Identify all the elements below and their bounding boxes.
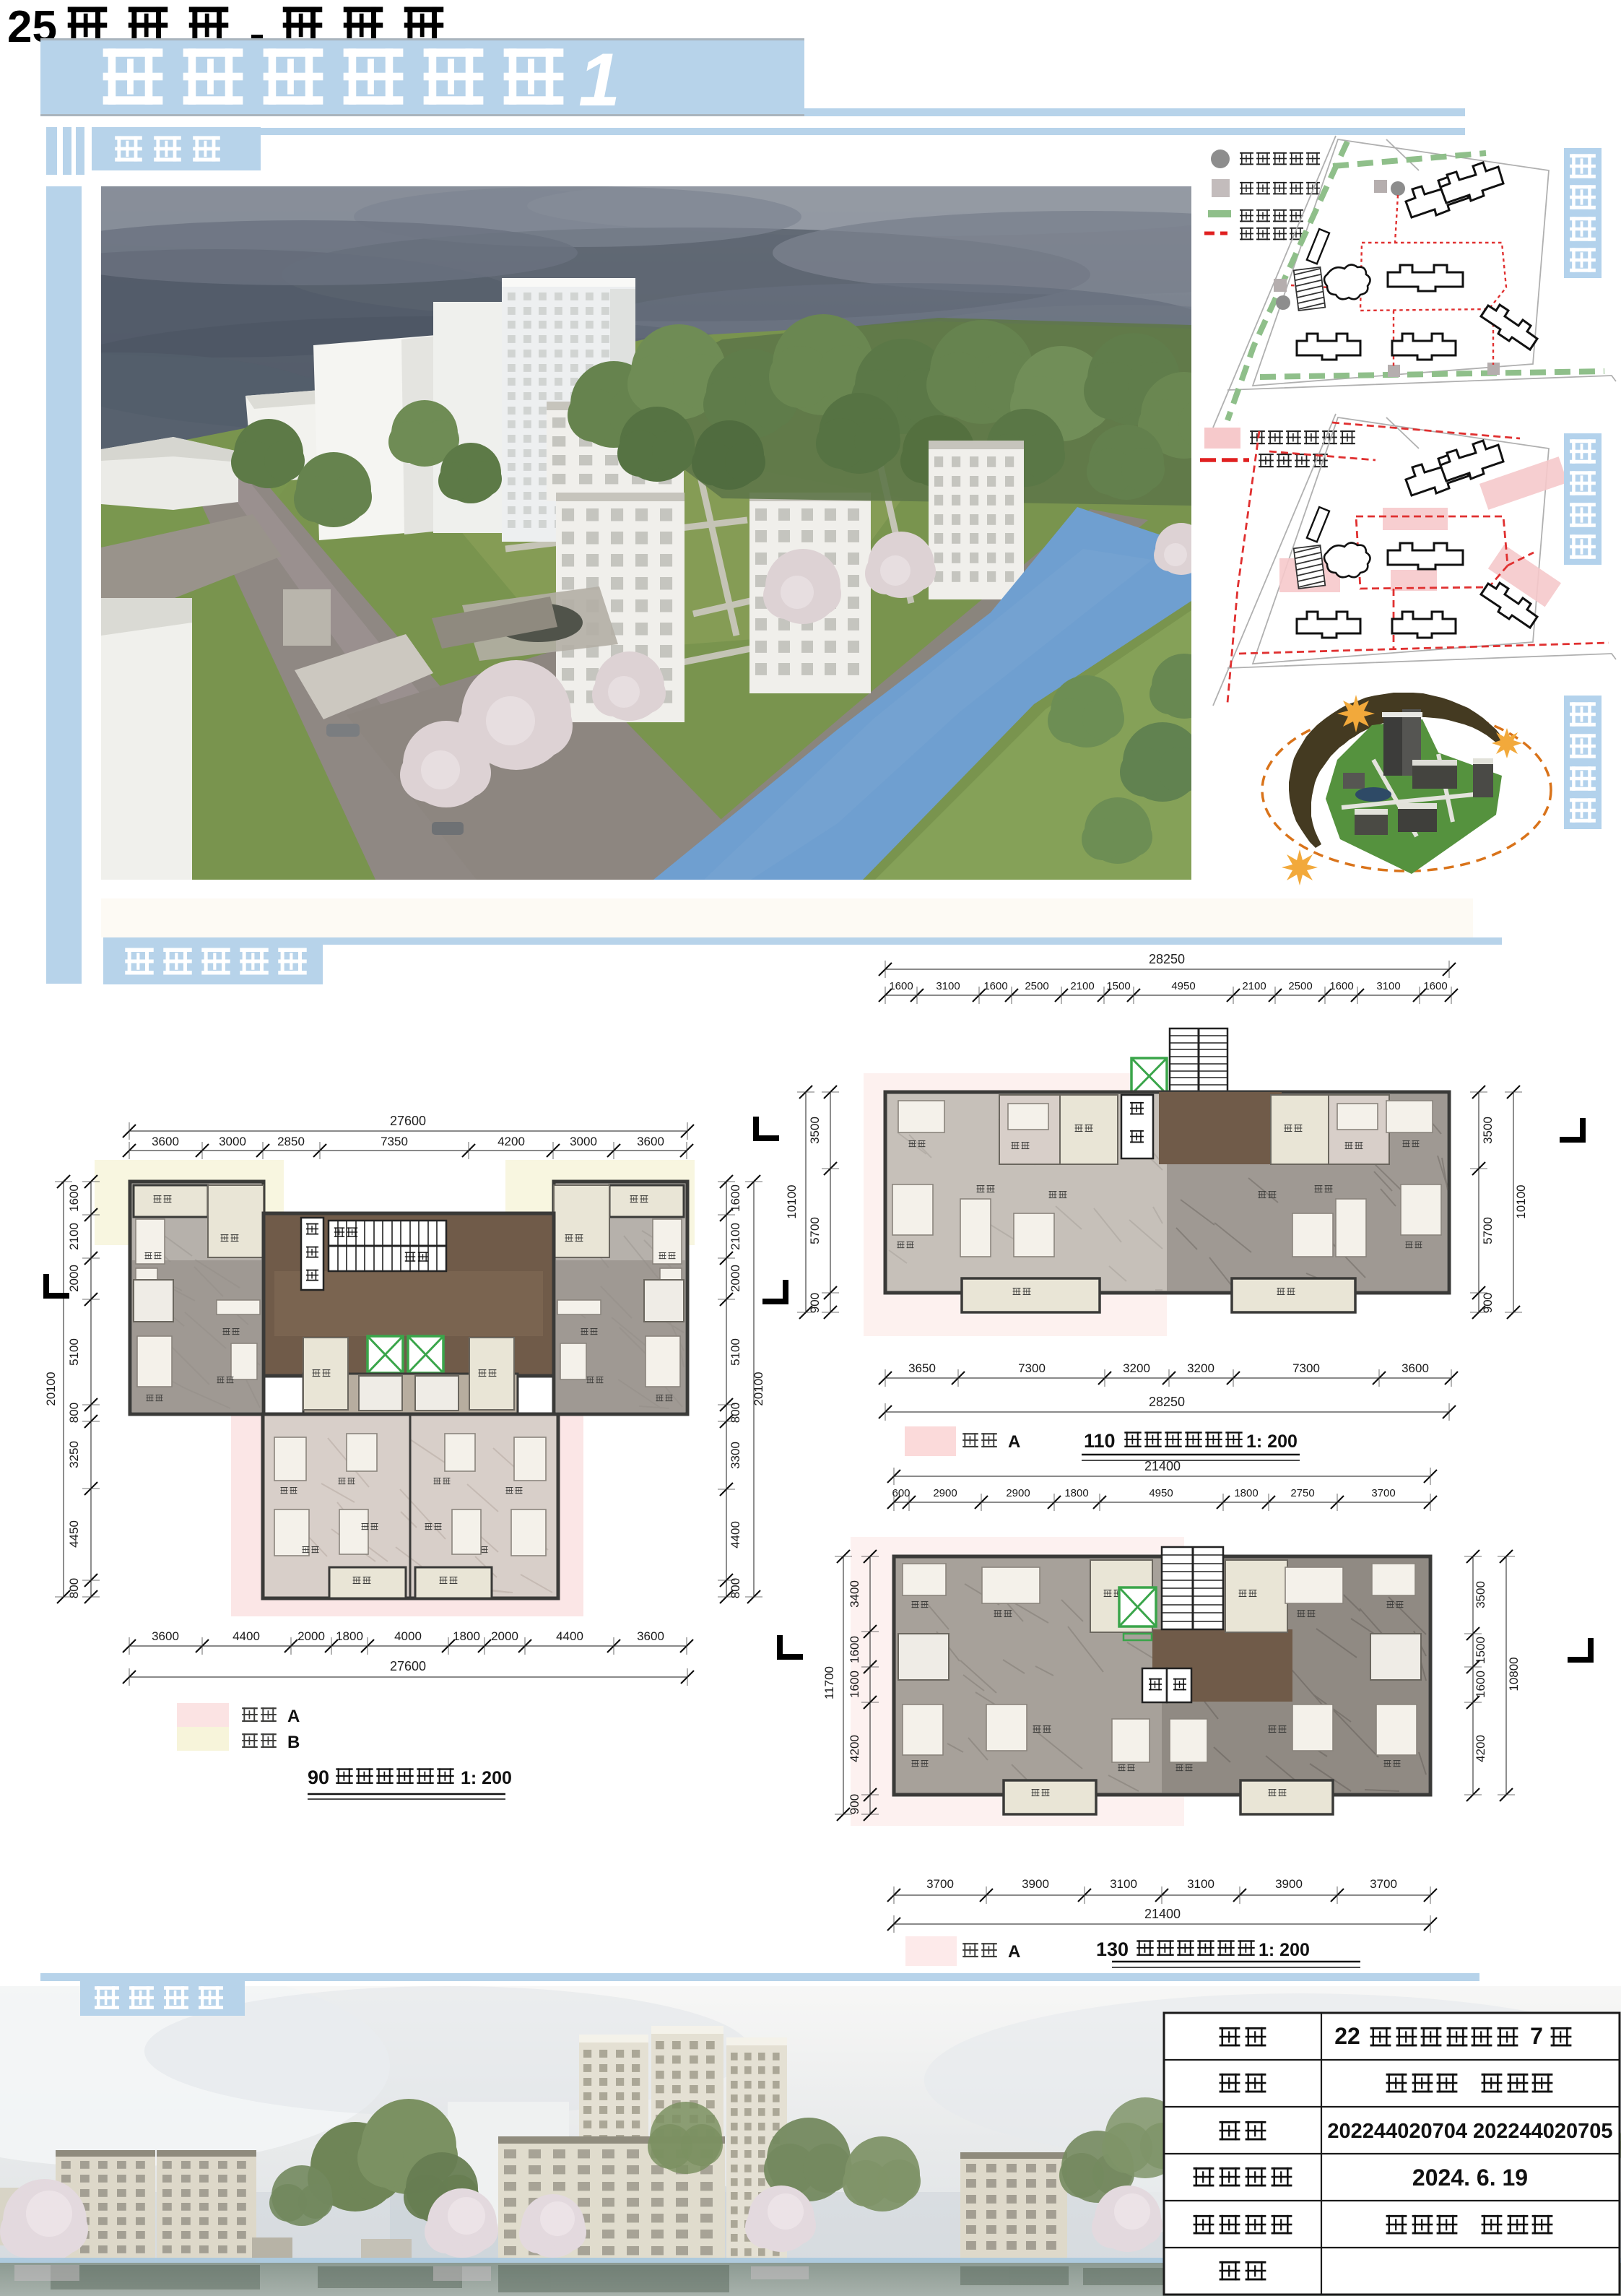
svg-text:4950: 4950 (1149, 1487, 1173, 1499)
svg-text:20100: 20100 (44, 1372, 58, 1405)
svg-text:1: 1 (578, 38, 620, 122)
svg-text:1: 200: 1: 200 (1259, 1940, 1310, 1960)
svg-text:800: 800 (729, 1403, 742, 1423)
svg-text:2500: 2500 (1025, 980, 1048, 992)
svg-text:1600: 1600 (729, 1184, 742, 1212)
svg-text:27600: 27600 (390, 1114, 426, 1128)
svg-text:110: 110 (1084, 1430, 1116, 1452)
svg-text:1600: 1600 (67, 1184, 81, 1212)
svg-text:3500: 3500 (1474, 1581, 1487, 1608)
svg-text:4200: 4200 (848, 1735, 861, 1762)
svg-text:202244020704 202244020705: 202244020704 202244020705 (1327, 2120, 1612, 2143)
svg-text:28250: 28250 (1149, 1395, 1185, 1409)
svg-text:3600: 3600 (637, 1629, 664, 1643)
svg-text:7350: 7350 (381, 1135, 408, 1148)
svg-text:7: 7 (1530, 2023, 1543, 2049)
svg-text:1800: 1800 (336, 1629, 363, 1643)
svg-text:2100: 2100 (1070, 980, 1094, 992)
svg-text:800: 800 (67, 1403, 81, 1423)
svg-text:3100: 3100 (1110, 1877, 1137, 1891)
svg-text:21400: 21400 (1144, 1459, 1181, 1473)
svg-text:4950: 4950 (1171, 980, 1195, 992)
svg-text:3100: 3100 (936, 980, 960, 992)
svg-text:3900: 3900 (1022, 1877, 1049, 1891)
svg-text:2900: 2900 (933, 1487, 957, 1499)
svg-text:27600: 27600 (390, 1659, 426, 1673)
svg-text:5100: 5100 (67, 1338, 81, 1366)
svg-text:2000: 2000 (297, 1629, 325, 1643)
svg-text:1: 200: 1: 200 (461, 1768, 512, 1788)
svg-text:2100: 2100 (1242, 980, 1266, 992)
svg-text:1500: 1500 (1106, 980, 1130, 992)
svg-text:4450: 4450 (67, 1520, 81, 1548)
svg-text:3500: 3500 (808, 1117, 822, 1144)
svg-text:5700: 5700 (1481, 1217, 1495, 1244)
svg-text:1600: 1600 (848, 1636, 861, 1663)
svg-text:2750: 2750 (1290, 1487, 1314, 1499)
svg-text:10100: 10100 (785, 1184, 799, 1218)
svg-text:2850: 2850 (277, 1135, 305, 1148)
svg-text:3100: 3100 (1376, 980, 1400, 992)
svg-text:2000: 2000 (67, 1265, 81, 1292)
svg-text:3600: 3600 (1401, 1361, 1429, 1375)
svg-text:1600: 1600 (889, 980, 913, 992)
svg-text:3250: 3250 (67, 1441, 81, 1468)
svg-text:10800: 10800 (1507, 1657, 1521, 1691)
svg-text:3700: 3700 (1370, 1877, 1397, 1891)
svg-text:2000: 2000 (491, 1629, 518, 1643)
svg-text:5700: 5700 (808, 1217, 822, 1244)
svg-text:3200: 3200 (1123, 1361, 1150, 1375)
svg-text:20100: 20100 (752, 1372, 765, 1405)
svg-text:B: B (287, 1733, 300, 1752)
svg-text:1600: 1600 (983, 980, 1007, 992)
svg-text:3300: 3300 (729, 1442, 742, 1469)
svg-text:1500: 1500 (1474, 1637, 1487, 1664)
svg-text:3000: 3000 (219, 1135, 246, 1148)
svg-text:800: 800 (729, 1578, 742, 1598)
svg-text:3600: 3600 (637, 1135, 664, 1148)
svg-text:600: 600 (892, 1487, 910, 1499)
svg-text:28250: 28250 (1149, 952, 1185, 966)
svg-text:11700: 11700 (822, 1666, 836, 1699)
svg-text:800: 800 (67, 1578, 81, 1598)
svg-text:900: 900 (808, 1293, 822, 1313)
svg-text:1: 200: 1: 200 (1246, 1431, 1298, 1452)
svg-text:A: A (287, 1707, 300, 1726)
svg-text:900: 900 (848, 1794, 861, 1814)
svg-text:3650: 3650 (908, 1361, 936, 1375)
svg-text:2500: 2500 (1288, 980, 1312, 992)
svg-text:3700: 3700 (1371, 1487, 1395, 1499)
svg-text:3200: 3200 (1187, 1361, 1214, 1375)
svg-text:1600: 1600 (1423, 980, 1447, 992)
svg-text:7300: 7300 (1292, 1361, 1320, 1375)
svg-text:3000: 3000 (570, 1135, 597, 1148)
svg-text:4200: 4200 (1474, 1735, 1487, 1762)
svg-text:2000: 2000 (729, 1265, 742, 1292)
svg-text:1800: 1800 (1234, 1487, 1258, 1499)
svg-text:4200: 4200 (497, 1135, 525, 1148)
svg-text:1600: 1600 (1329, 980, 1353, 992)
svg-text:4400: 4400 (729, 1521, 742, 1548)
svg-text:22: 22 (1334, 2023, 1360, 2049)
svg-text:5100: 5100 (729, 1338, 742, 1366)
svg-text:900: 900 (1481, 1293, 1495, 1313)
svg-text:1800: 1800 (1064, 1487, 1088, 1499)
svg-text:4400: 4400 (232, 1629, 260, 1643)
svg-text:3100: 3100 (1187, 1877, 1214, 1891)
svg-text:A: A (1008, 1432, 1020, 1452)
svg-text:2900: 2900 (1006, 1487, 1030, 1499)
svg-text:4000: 4000 (394, 1629, 422, 1643)
svg-text:2100: 2100 (729, 1223, 742, 1250)
svg-text:3400: 3400 (848, 1580, 861, 1608)
svg-text:7300: 7300 (1018, 1361, 1046, 1375)
svg-text:1600: 1600 (848, 1671, 861, 1698)
svg-text:90: 90 (308, 1767, 329, 1788)
svg-text:3500: 3500 (1481, 1117, 1495, 1144)
svg-text:A: A (1008, 1942, 1020, 1962)
svg-text:130: 130 (1096, 1938, 1129, 1960)
svg-text:2024. 6. 19: 2024. 6. 19 (1412, 2165, 1528, 2191)
svg-text:3700: 3700 (926, 1877, 954, 1891)
svg-text:21400: 21400 (1144, 1907, 1181, 1921)
svg-text:2100: 2100 (67, 1223, 81, 1250)
svg-text:4400: 4400 (556, 1629, 583, 1643)
svg-text:10100: 10100 (1514, 1184, 1528, 1218)
svg-text:1800: 1800 (453, 1629, 480, 1643)
svg-text:3600: 3600 (152, 1629, 179, 1643)
svg-text:3600: 3600 (152, 1135, 179, 1148)
svg-text:1600: 1600 (1474, 1671, 1487, 1698)
svg-text:3900: 3900 (1275, 1877, 1303, 1891)
